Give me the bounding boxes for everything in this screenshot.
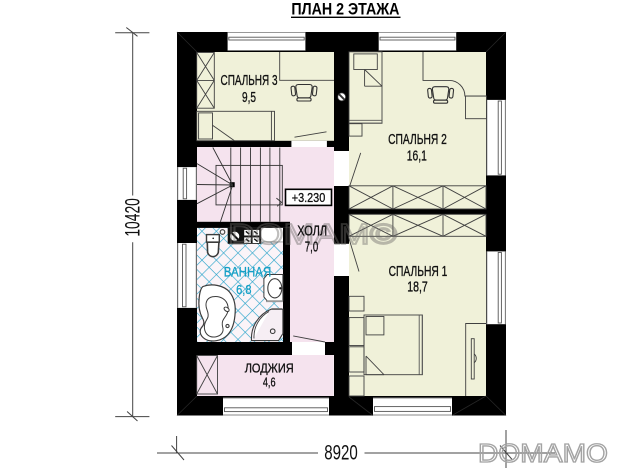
svg-text:9,5: 9,5	[242, 90, 256, 106]
svg-text:DOMAMO: DOMAMO	[478, 438, 608, 468]
svg-text:ВАННАЯ: ВАННАЯ	[224, 263, 272, 279]
svg-text:СПАЛЬНЯ 3: СПАЛЬНЯ 3	[221, 73, 278, 89]
svg-text:ХОЛЛ: ХОЛЛ	[297, 223, 327, 239]
svg-text:СПАЛЬНЯ 1: СПАЛЬНЯ 1	[389, 264, 448, 280]
svg-text:СПАЛЬНЯ 2: СПАЛЬНЯ 2	[388, 132, 447, 148]
svg-text:10420: 10420	[122, 198, 145, 237]
svg-text:ПЛАН 2 ЭТАЖА: ПЛАН 2 ЭТАЖА	[291, 0, 399, 18]
svg-text:ЛОДЖИЯ: ЛОДЖИЯ	[245, 362, 294, 376]
svg-text:7,0: 7,0	[305, 239, 318, 255]
svg-text:8920: 8920	[324, 441, 358, 464]
svg-text:+3.230: +3.230	[292, 190, 326, 205]
svg-text:4,6: 4,6	[263, 376, 276, 390]
svg-text:6,8: 6,8	[236, 282, 251, 297]
svg-text:16,1: 16,1	[407, 149, 427, 165]
svg-text:18,7: 18,7	[407, 280, 428, 296]
